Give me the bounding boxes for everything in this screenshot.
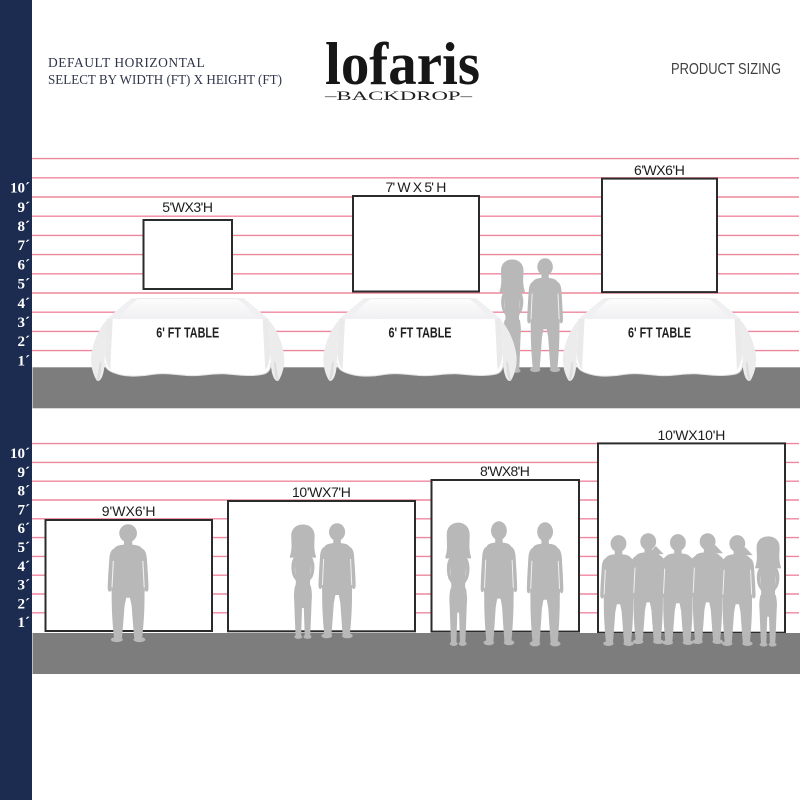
svg-text:10'WX10'H: 10'WX10'H [658,427,726,443]
svg-text:9'WX6'H: 9'WX6'H [102,503,156,519]
svg-text:DEFAULT HORIZONTAL: DEFAULT HORIZONTAL [48,55,205,70]
svg-text:9´: 9´ [18,200,31,216]
svg-text:2´: 2´ [18,596,31,612]
svg-text:10'WX7'H: 10'WX7'H [292,484,351,500]
svg-text:9´: 9´ [18,465,31,481]
svg-text:7´: 7´ [18,238,31,254]
svg-text:6' FT TABLE: 6' FT TABLE [156,325,219,342]
svg-text:5'WX3'H: 5'WX3'H [162,199,213,215]
svg-text:10´: 10´ [10,446,30,462]
svg-text:8'WX8'H: 8'WX8'H [480,463,530,479]
svg-text:6'WX6'H: 6'WX6'H [634,162,685,178]
svg-text:7' W X 5' H: 7' W X 5' H [386,179,447,195]
svg-text:6´: 6´ [18,257,31,273]
svg-text:PRODUCT SIZING: PRODUCT SIZING [671,61,781,78]
svg-text:3´: 3´ [18,578,31,594]
svg-text:6' FT TABLE: 6' FT TABLE [628,325,691,342]
svg-text:8´: 8´ [18,219,31,235]
svg-text:–BACKDROP–: –BACKDROP– [323,88,473,103]
svg-text:7´: 7´ [18,502,31,518]
svg-text:2´: 2´ [18,334,31,350]
svg-text:6' FT TABLE: 6' FT TABLE [389,325,452,342]
svg-text:5´: 5´ [18,540,31,556]
svg-text:SELECT BY WIDTH (FT) X HEIGHT: SELECT BY WIDTH (FT) X HEIGHT (FT) [48,72,282,87]
svg-text:6´: 6´ [18,521,31,537]
svg-text:8´: 8´ [18,484,31,500]
svg-text:1´: 1´ [18,353,31,369]
svg-text:10´: 10´ [10,181,30,197]
svg-text:3´: 3´ [18,315,31,331]
svg-text:5´: 5´ [18,277,31,293]
svg-text:4´: 4´ [18,296,31,312]
svg-text:1´: 1´ [18,615,31,631]
svg-text:4´: 4´ [18,559,31,575]
